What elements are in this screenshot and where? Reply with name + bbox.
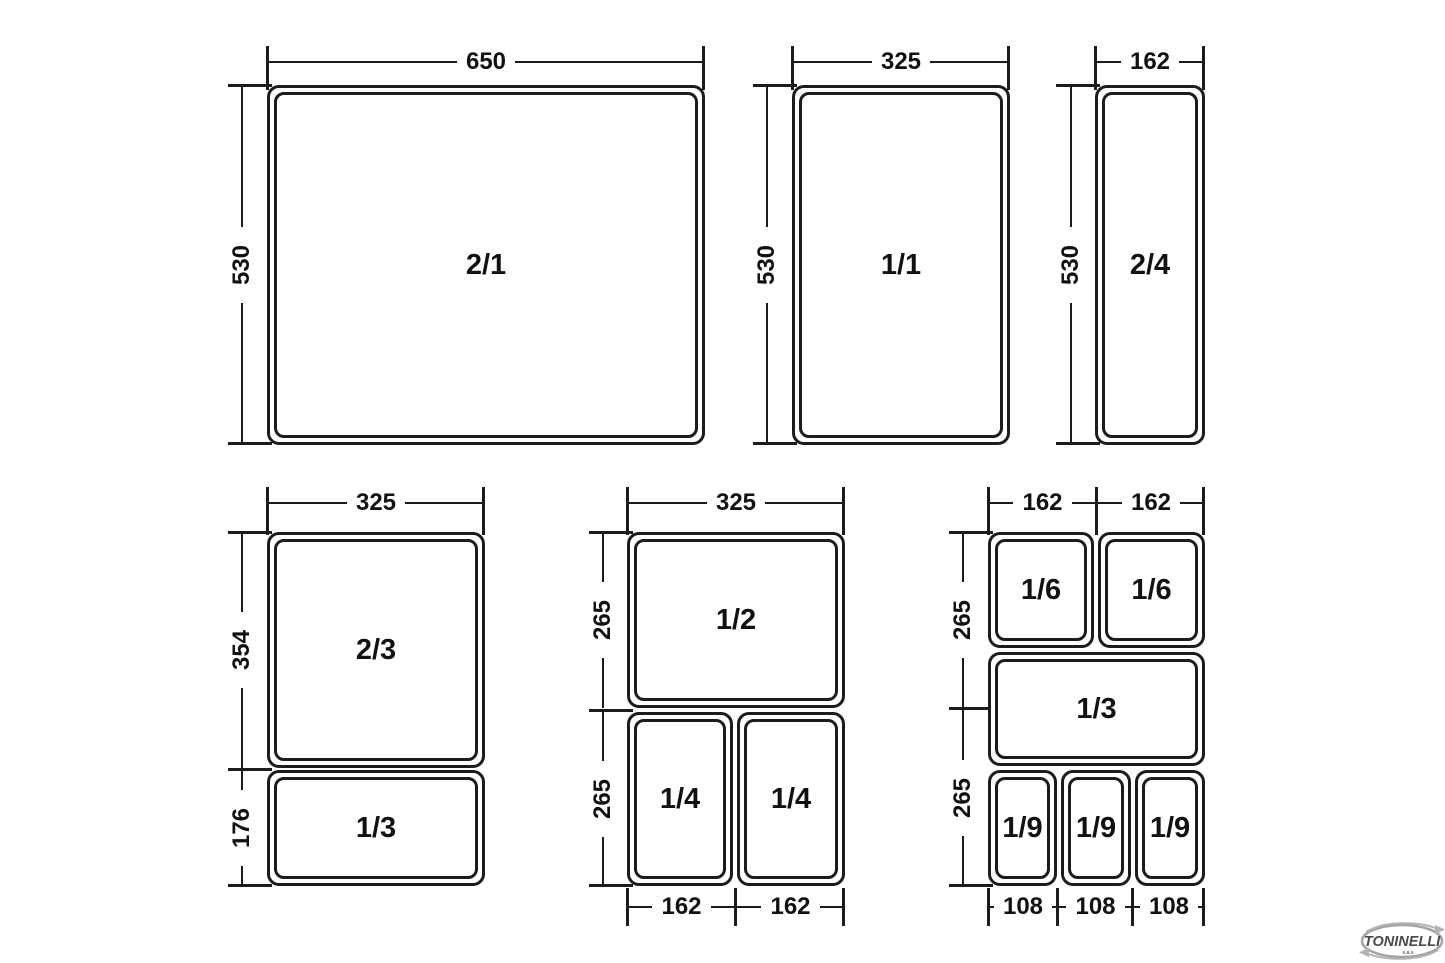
pan-2-4-label: 2/4	[1130, 249, 1170, 282]
dim-bottom-1-9-b: 108	[1058, 894, 1133, 920]
pan-1-3-left: 1/3	[267, 770, 485, 886]
pan-2-1-label: 2/1	[466, 249, 506, 282]
dim-line	[602, 532, 605, 582]
tick	[266, 487, 269, 535]
dim-line	[241, 866, 244, 886]
dim-value: 108	[1149, 895, 1189, 919]
dim-bottom-1-9-c: 108	[1133, 894, 1205, 920]
tick	[1007, 46, 1010, 90]
dim-value-wrap: 354	[229, 621, 255, 679]
logo-suffix-text: s.a.s	[1402, 950, 1413, 956]
tick	[702, 46, 705, 90]
dim-height-1-4: 265	[590, 712, 616, 886]
tick	[228, 531, 272, 534]
pan-1-9-a-label: 1/9	[1002, 812, 1042, 845]
dim-line	[962, 836, 965, 886]
pan-1-4-right-inner: 1/4	[744, 719, 838, 879]
pan-1-2-label: 1/2	[716, 604, 756, 637]
pan-1-1-label: 1/1	[881, 249, 921, 282]
dim-width-1-6-left: 162	[988, 490, 1097, 516]
dim-line	[1072, 502, 1097, 505]
dim-line	[1095, 61, 1121, 64]
pan-1-9-c-inner: 1/9	[1142, 777, 1198, 879]
dim-value: 162	[770, 895, 810, 919]
pan-1-9-c-label: 1/9	[1150, 812, 1190, 845]
tick	[1131, 888, 1134, 926]
dim-line	[1133, 906, 1140, 909]
dim-width-2-3: 325	[267, 490, 485, 516]
tick	[1202, 46, 1205, 90]
dim-line	[1058, 906, 1066, 909]
pan-1-9-b-label: 1/9	[1076, 812, 1116, 845]
tick	[753, 442, 797, 445]
dim-height-2-3: 354	[229, 532, 255, 768]
tick	[589, 709, 633, 712]
dim-height-2-1: 530	[229, 85, 255, 445]
tick	[949, 884, 993, 887]
dim-height-1-9: 265	[950, 710, 976, 886]
pan-1-6-right-label: 1/6	[1131, 574, 1171, 607]
pan-1-3-wide-label: 1/3	[1076, 693, 1116, 726]
pan-2-4-inner: 2/4	[1102, 92, 1198, 438]
tick	[626, 888, 629, 926]
pan-1-6-right-inner: 1/6	[1105, 539, 1198, 641]
dim-width-1-2: 325	[627, 490, 845, 516]
dim-line	[602, 658, 605, 708]
dim-width-2-4: 162	[1095, 49, 1205, 75]
tick	[228, 884, 272, 887]
tick	[1202, 888, 1205, 926]
tick	[482, 487, 485, 535]
pan-2-3: 2/3	[267, 532, 485, 768]
dim-line	[241, 532, 244, 612]
dim-bottom-1-4-right: 162	[736, 894, 845, 920]
toninelli-logo: TONINELLI s.a.s	[1350, 916, 1445, 963]
tick	[753, 84, 797, 87]
dim-bottom-1-4-left: 162	[627, 894, 736, 920]
pan-1-4-right: 1/4	[737, 712, 845, 886]
dim-line	[736, 906, 761, 909]
dim-line	[766, 85, 769, 227]
pan-1-3-left-inner: 1/3	[274, 777, 478, 879]
pan-1-1-inner: 1/1	[799, 92, 1003, 438]
pan-1-9-a: 1/9	[988, 770, 1057, 886]
dim-height-1-2: 265	[590, 532, 616, 708]
pan-2-4: 2/4	[1095, 85, 1205, 445]
dim-value: 530	[755, 245, 779, 285]
tick	[1056, 888, 1059, 926]
dim-width-2-1: 650	[267, 49, 705, 75]
pan-2-3-inner: 2/3	[274, 539, 478, 761]
dim-value-wrap: 530	[754, 236, 780, 294]
dim-value: 325	[356, 491, 396, 515]
dim-line	[602, 712, 605, 761]
dim-line	[711, 906, 736, 909]
dim-value-wrap: 265	[590, 591, 616, 649]
dim-line	[962, 710, 965, 760]
dim-line	[962, 658, 965, 708]
pan-1-6-right: 1/6	[1098, 532, 1205, 648]
pan-1-9-a-inner: 1/9	[995, 777, 1050, 879]
dim-value: 530	[230, 245, 254, 285]
dim-value: 265	[591, 600, 615, 640]
tick	[228, 768, 272, 771]
dim-value-wrap: 265	[950, 591, 976, 649]
dim-line	[241, 770, 244, 790]
dim-value: 354	[230, 630, 254, 670]
dim-value: 162	[1022, 491, 1062, 515]
dim-line	[930, 61, 1010, 64]
dim-value: 265	[591, 779, 615, 819]
dim-value: 265	[951, 778, 975, 818]
pan-1-9-c: 1/9	[1135, 770, 1205, 886]
pan-1-4-left: 1/4	[627, 712, 733, 886]
pan-1-2: 1/2	[627, 532, 845, 708]
tick	[734, 888, 737, 926]
pan-1-9-b: 1/9	[1061, 770, 1131, 886]
tick	[228, 442, 272, 445]
dim-line	[241, 303, 244, 445]
dim-line	[241, 85, 244, 227]
dim-value: 325	[716, 491, 756, 515]
dim-value: 162	[1131, 491, 1171, 515]
tick	[228, 84, 272, 87]
dim-value-wrap: 530	[1058, 236, 1084, 294]
tick	[1056, 442, 1100, 445]
dim-line	[766, 303, 769, 445]
tick	[626, 487, 629, 535]
dim-width-1-6-right: 162	[1097, 490, 1205, 516]
dim-line	[515, 61, 705, 64]
tick	[842, 888, 845, 926]
dim-value-wrap: 176	[229, 799, 255, 857]
pan-1-3-wide-inner: 1/3	[995, 659, 1198, 759]
pan-1-2-inner: 1/2	[634, 539, 838, 701]
tick	[1095, 487, 1098, 535]
pan-1-4-left-inner: 1/4	[634, 719, 726, 879]
dim-line	[765, 502, 845, 505]
dim-line	[241, 688, 244, 768]
tick	[949, 531, 993, 534]
pan-1-6-left-label: 1/6	[1021, 574, 1061, 607]
dim-line	[792, 61, 872, 64]
dim-value-wrap: 265	[950, 769, 976, 827]
pan-1-3-wide: 1/3	[988, 652, 1205, 766]
dim-bottom-1-9-a: 108	[988, 894, 1058, 920]
tick	[987, 487, 990, 535]
dim-value: 176	[230, 808, 254, 848]
pan-1-3-left-label: 1/3	[356, 812, 396, 845]
dim-height-1-1: 530	[754, 85, 780, 445]
pan-2-1-inner: 2/1	[274, 92, 698, 438]
dim-line	[988, 502, 1013, 505]
pan-1-6-left-inner: 1/6	[995, 539, 1087, 641]
dim-value: 162	[1130, 50, 1170, 74]
dim-value: 325	[881, 50, 921, 74]
dim-line	[962, 532, 965, 582]
pan-2-3-label: 2/3	[356, 634, 396, 667]
dim-line	[1097, 502, 1122, 505]
dim-height-2-4: 530	[1058, 85, 1084, 445]
logo-brand-text: TONINELLI	[1364, 934, 1441, 950]
tick	[1202, 487, 1205, 535]
dim-line	[1070, 85, 1073, 227]
dim-value-wrap: 530	[229, 236, 255, 294]
dim-line	[627, 502, 707, 505]
dim-value: 108	[1003, 895, 1043, 919]
tick	[589, 531, 633, 534]
pan-1-4-left-label: 1/4	[660, 783, 700, 816]
pan-2-1: 2/1	[267, 85, 705, 445]
dim-value-wrap: 265	[590, 770, 616, 828]
dim-line	[602, 837, 605, 886]
dim-value: 108	[1075, 895, 1115, 919]
dim-line	[405, 502, 485, 505]
dim-value: 530	[1059, 245, 1083, 285]
dim-line	[267, 61, 457, 64]
tick	[589, 884, 633, 887]
tick	[987, 888, 990, 926]
pan-1-4-right-label: 1/4	[771, 783, 811, 816]
pan-1-9-b-inner: 1/9	[1068, 777, 1124, 879]
pan-1-6-left: 1/6	[988, 532, 1094, 648]
dim-line	[1070, 303, 1073, 445]
gastronorm-size-diagram: 650 530 2/1 325 530 1/1 162	[0, 0, 1445, 963]
dim-width-1-1: 325	[792, 49, 1010, 75]
dim-height-1-3: 176	[229, 770, 255, 886]
pan-1-1: 1/1	[792, 85, 1010, 445]
dim-height-1-6: 265	[950, 532, 976, 708]
dim-line	[267, 502, 347, 505]
tick	[842, 487, 845, 535]
dim-line	[627, 906, 652, 909]
dim-value: 265	[951, 600, 975, 640]
dim-value: 162	[661, 895, 701, 919]
tick	[1056, 84, 1100, 87]
dim-value: 650	[466, 50, 506, 74]
